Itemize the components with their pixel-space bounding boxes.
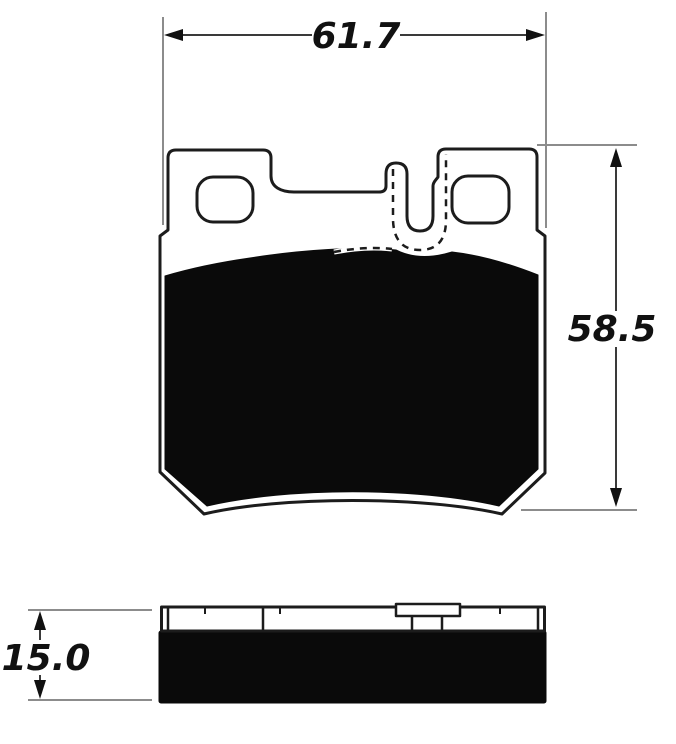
friction-material <box>165 248 538 506</box>
width-dimension-label: 61.7 <box>312 16 401 57</box>
height-arrow-up-icon <box>610 148 622 167</box>
thickness-arrow-up-icon <box>34 611 46 630</box>
height-dimension-label: 58.5 <box>568 309 657 350</box>
side-backing-plate <box>162 607 545 631</box>
thickness-dimension: 15.0 <box>2 610 152 700</box>
thickness-arrow-down-icon <box>34 680 46 699</box>
height-arrow-down-icon <box>610 488 622 507</box>
thickness-dimension-label: 15.0 <box>2 638 91 679</box>
mounting-hole-left <box>197 177 253 222</box>
side-view <box>159 604 546 703</box>
brake-pad-dimensional-drawing: 61.7 58.5 15.0 <box>0 0 676 744</box>
drawing-canvas: 61.7 58.5 15.0 <box>0 0 676 744</box>
mounting-hole-right <box>452 176 509 223</box>
side-friction-material <box>159 631 546 703</box>
width-arrow-right-icon <box>526 29 545 41</box>
side-clip-bar <box>396 604 460 616</box>
front-view <box>160 149 545 514</box>
width-arrow-left-icon <box>164 29 183 41</box>
